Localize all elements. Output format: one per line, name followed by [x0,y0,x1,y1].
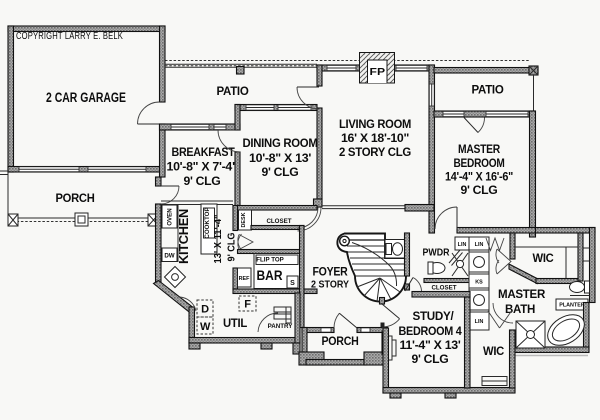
svg-text:PLANTER: PLANTER [559,303,585,309]
svg-text:13' X 11'-4": 13' X 11'-4" [213,214,224,263]
svg-text:FP: FP [370,67,386,78]
svg-text:CLOSET: CLOSET [266,218,291,225]
svg-text:UTIL: UTIL [223,316,247,330]
svg-text:DINING ROOM: DINING ROOM [243,136,318,150]
svg-text:LIN: LIN [475,319,484,325]
svg-text:16' X 18'-10": 16' X 18'-10" [341,131,409,145]
svg-text:PATIO: PATIO [217,84,249,98]
svg-text:F: F [244,299,251,311]
svg-text:LIVING ROOM: LIVING ROOM [339,117,411,131]
svg-text:LIN: LIN [458,242,467,248]
svg-text:10'-8" X 13': 10'-8" X 13' [249,151,311,165]
svg-text:BEDROOM 4: BEDROOM 4 [399,324,463,338]
svg-text:DW: DW [164,253,174,260]
svg-text:BAR: BAR [257,267,283,283]
svg-text:11'-4" X 13': 11'-4" X 13' [400,338,461,352]
svg-text:CLOSET: CLOSET [431,285,456,292]
svg-text:STUDY/: STUDY/ [413,309,455,323]
svg-text:9' CLG: 9' CLG [262,165,299,179]
svg-text:WIC: WIC [533,251,555,265]
svg-text:FLIP TOP: FLIP TOP [256,257,284,264]
svg-text:W: W [200,321,211,333]
svg-text:BEDROOM: BEDROOM [454,156,505,170]
svg-text:PORCH: PORCH [56,191,95,205]
svg-text:REF: REF [239,276,250,282]
svg-text:PORCH: PORCH [322,334,359,348]
svg-text:9' CLG: 9' CLG [227,232,238,261]
svg-text:KITCHEN: KITCHEN [176,209,191,264]
svg-text:MASTER: MASTER [458,142,501,156]
svg-text:FOYER: FOYER [313,265,349,279]
svg-text:PATIO: PATIO [472,83,504,97]
svg-text:COOKTOP: COOKTOP [204,207,211,238]
svg-text:14'-4" X 16'-6": 14'-4" X 16'-6" [445,170,513,184]
svg-text:MASTER: MASTER [498,287,546,301]
svg-text:2 STORY CLG: 2 STORY CLG [339,145,411,159]
svg-text:9' CLG: 9' CLG [184,174,221,188]
svg-text:2 CAR GARAGE: 2 CAR GARAGE [46,90,126,105]
svg-text:DESK: DESK [241,212,247,227]
svg-text:2 STORY: 2 STORY [311,280,349,291]
svg-text:COPYRIGHT LARRY E. BELK: COPYRIGHT LARRY E. BELK [16,31,123,42]
svg-text:S: S [290,280,295,287]
svg-text:OVEN: OVEN [167,208,174,226]
svg-text:9' CLG: 9' CLG [461,183,498,197]
svg-text:9' CLG: 9' CLG [412,352,449,366]
svg-text:PWDR: PWDR [423,248,451,259]
svg-text:D: D [201,304,209,316]
svg-text:KS: KS [475,280,483,286]
svg-text:PANTRY: PANTRY [268,323,294,330]
svg-text:LIN: LIN [475,242,484,248]
svg-text:10'-8" X 7'-4": 10'-8" X 7'-4" [167,160,238,174]
svg-text:WIC: WIC [483,344,505,358]
